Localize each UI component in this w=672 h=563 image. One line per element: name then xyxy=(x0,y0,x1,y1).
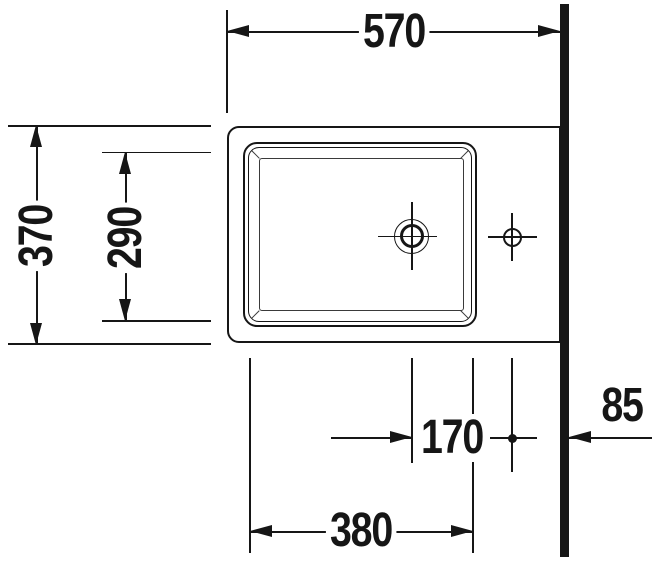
dimension-dot-170 xyxy=(508,434,517,443)
wall-section-line xyxy=(560,4,569,557)
arrowhead-290-up xyxy=(119,152,131,174)
arrowhead-170-right xyxy=(390,431,412,443)
extension-line-faucet-center xyxy=(511,358,512,472)
dim-label-faucet-to-wall: 85 xyxy=(597,382,647,430)
arrowhead-370-down xyxy=(30,323,42,345)
washbasin-technical-drawing: 570 370 290 170 85 380 xyxy=(0,0,672,563)
dim-label-overall-depth: 370 xyxy=(13,201,61,271)
arrowhead-380-right xyxy=(451,525,473,537)
dim-label-basin-inner-width: 380 xyxy=(326,507,396,555)
dim-label-basin-inner-depth: 290 xyxy=(102,203,150,273)
extension-line-basin-left xyxy=(249,358,251,553)
arrowhead-370-up xyxy=(30,125,42,147)
dim-label-overall-width: 570 xyxy=(359,8,429,56)
dim-label-drain-to-faucet: 170 xyxy=(417,414,487,462)
arrowhead-290-down xyxy=(119,299,131,321)
arrowhead-570-left xyxy=(227,25,249,37)
drain-centerline-vertical xyxy=(411,202,413,270)
extension-line-drain-center xyxy=(411,358,412,463)
arrowhead-85-left xyxy=(569,431,591,443)
arrowhead-570-right xyxy=(538,25,560,37)
arrowhead-380-left xyxy=(250,525,272,537)
faucet-centerline-vertical xyxy=(511,213,513,261)
basin-inner-slope xyxy=(259,158,464,311)
drain-centerline-horizontal xyxy=(378,236,437,238)
